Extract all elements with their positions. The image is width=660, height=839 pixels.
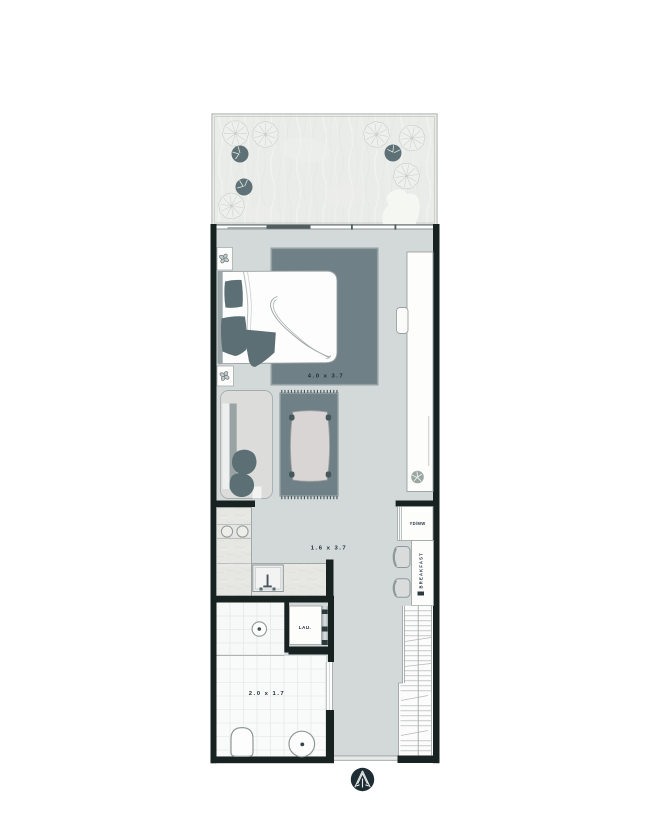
svg-text:LAU.: LAU. xyxy=(299,625,312,630)
svg-text:4.0 x 3.7: 4.0 x 3.7 xyxy=(308,374,344,380)
svg-text:2.0 x 1.7: 2.0 x 1.7 xyxy=(249,691,285,697)
svg-text:BREAKFAST: BREAKFAST xyxy=(418,552,423,588)
svg-text:1.6 x 3.7: 1.6 x 3.7 xyxy=(311,546,347,552)
svg-text:YD/MW: YD/MW xyxy=(410,521,426,526)
